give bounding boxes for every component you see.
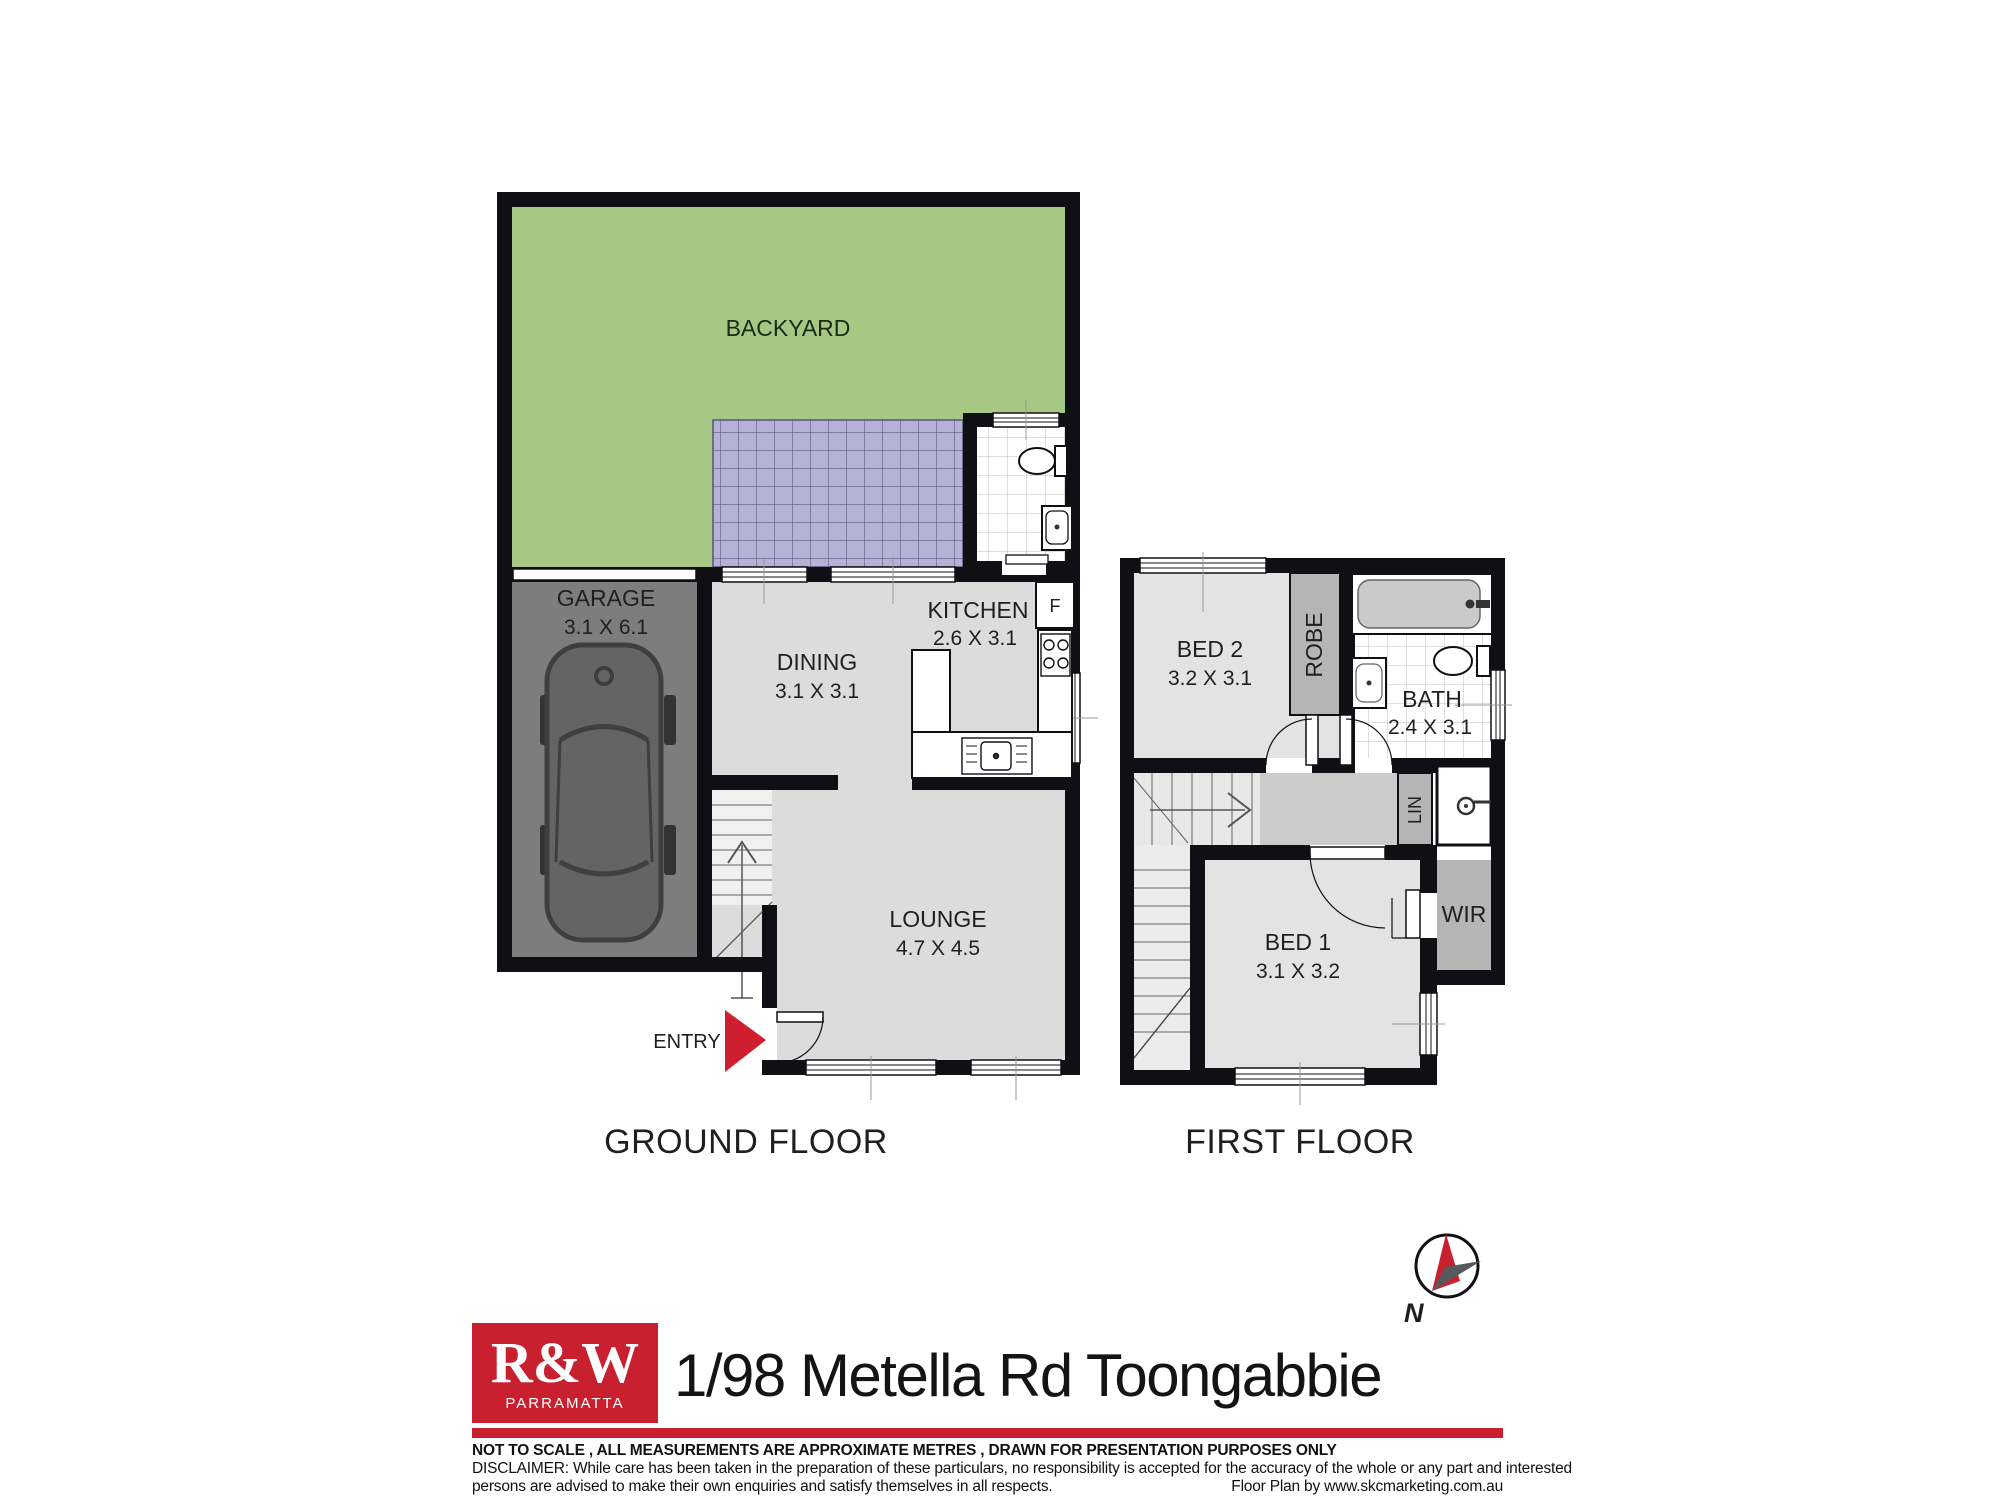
disclaimer-line-2: DISCLAIMER: While care has been taken in… <box>472 1460 1503 1478</box>
disclaimer-line-3: persons are advised to make their own en… <box>472 1478 1053 1496</box>
bed1-label: BED 1 <box>1265 929 1331 955</box>
wir-label: WIR <box>1442 901 1487 927</box>
kitchen-dims: 2.6 X 3.1 <box>933 627 1017 650</box>
robe-label: ROBE <box>1301 612 1327 677</box>
bed1-dims: 3.1 X 3.2 <box>1256 960 1340 983</box>
disclaimer-line-1: NOT TO SCALE , ALL MEASUREMENTS ARE APPR… <box>472 1442 1503 1460</box>
entry-label: ENTRY <box>653 1031 720 1053</box>
bath-toilet <box>1434 646 1490 676</box>
stair-top-run <box>1134 773 1260 845</box>
red-divider <box>472 1428 1503 1438</box>
toilet-bowl <box>1019 448 1055 474</box>
ground-floor-plan: BACKYARD GARAGE 3.1 X 6.1 DINING 3.1 X 3… <box>497 192 1098 1161</box>
garage-door <box>513 569 696 580</box>
entry-arrow <box>725 1010 766 1072</box>
disclaimer-block: NOT TO SCALE , ALL MEASUREMENTS ARE APPR… <box>472 1442 1503 1496</box>
bed2-dims: 3.2 X 3.1 <box>1168 667 1252 690</box>
agency-brand: R&W <box>491 1334 639 1392</box>
agency-branch: PARRAMATTA <box>505 1395 624 1412</box>
stair-left-run <box>1134 845 1190 1070</box>
north-label: N <box>1404 1298 1424 1328</box>
shower <box>1437 766 1491 845</box>
bath-basin <box>1352 658 1386 708</box>
compass: N <box>1404 1234 1481 1328</box>
garage-dims: 3.1 X 6.1 <box>564 616 648 639</box>
lounge-label: LOUNGE <box>889 906 986 932</box>
lin-label: LIN <box>1405 796 1425 824</box>
car-icon <box>540 645 676 940</box>
bed2-label: BED 2 <box>1177 636 1243 662</box>
floor-plan-graphic: BACKYARD GARAGE 3.1 X 6.1 DINING 3.1 X 3… <box>0 0 2000 1500</box>
agency-logo: R&W PARRAMATTA <box>472 1323 658 1423</box>
bath-label: BATH <box>1402 686 1462 712</box>
fridge-label: F <box>1050 596 1061 616</box>
paved-patio <box>713 420 963 567</box>
floorplan-credit: Floor Plan by www.skcmarketing.com.au <box>1231 1478 1503 1496</box>
first-floor-plan: BED 2 3.2 X 3.1 ROBE BATH 2.4 X 3.1 LIN … <box>1120 552 1512 1161</box>
first-floor-title: FIRST FLOOR <box>1185 1123 1415 1161</box>
bath-dims: 2.4 X 3.1 <box>1388 716 1472 739</box>
kitchen-label: KITCHEN <box>928 597 1029 623</box>
toilet-tank <box>1055 446 1067 476</box>
dining-label: DINING <box>777 649 858 675</box>
bathtub <box>1352 574 1492 634</box>
sink-icon <box>962 738 1032 774</box>
ground-floor-title: GROUND FLOOR <box>604 1123 888 1161</box>
garage-label: GARAGE <box>557 585 655 611</box>
property-address: 1/98 Metella Rd Toongabbie <box>674 1341 1381 1410</box>
stove-icon <box>1041 634 1070 676</box>
dining-dims: 3.1 X 3.1 <box>775 680 859 703</box>
floor-plan-page: BACKYARD GARAGE 3.1 X 6.1 DINING 3.1 X 3… <box>0 0 2000 1500</box>
lounge-dims: 4.7 X 4.5 <box>896 937 980 960</box>
backyard-label: BACKYARD <box>726 315 851 341</box>
counter-left <box>912 650 950 732</box>
